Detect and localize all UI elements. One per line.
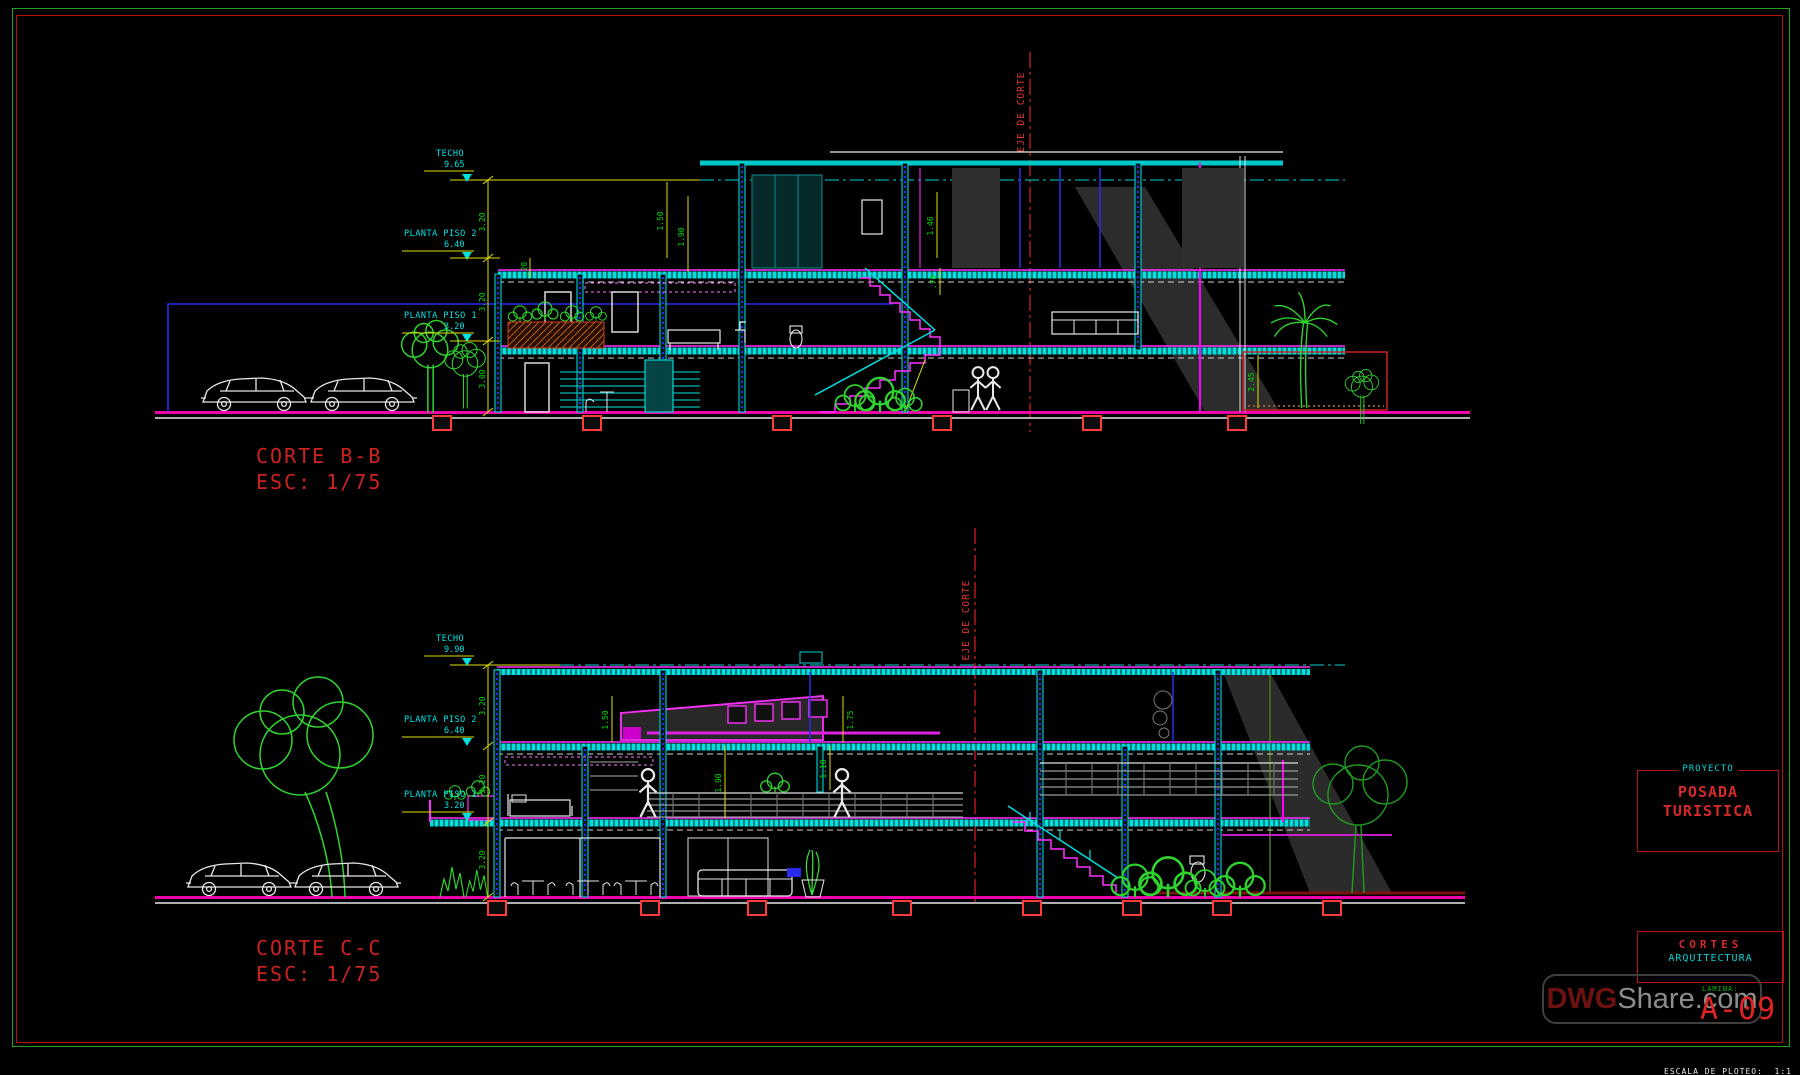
svg-text:1.46: 1.46 xyxy=(926,216,935,235)
svg-text:1.50: 1.50 xyxy=(601,710,610,729)
svg-text:1.75: 1.75 xyxy=(846,710,855,729)
svg-text:3.20: 3.20 xyxy=(444,322,464,332)
svg-text:PLANTA PISO 2: PLANTA PISO 2 xyxy=(404,715,477,725)
svg-text:3.20: 3.20 xyxy=(478,774,487,793)
svg-text:9.65: 9.65 xyxy=(444,160,464,170)
section-title-corte-cc: CORTE C-C xyxy=(256,936,382,960)
svg-text:PLANTA PISO 2: PLANTA PISO 2 xyxy=(404,229,477,239)
sheet-number: A-09 xyxy=(1700,992,1776,1027)
svg-text:9.90: 9.90 xyxy=(444,645,464,655)
svg-text:6.40: 6.40 xyxy=(444,240,464,250)
ground-line xyxy=(155,893,1465,903)
svg-text:1.90: 1.90 xyxy=(714,773,723,792)
bush-glyph xyxy=(466,870,488,897)
svg-text:.20: .20 xyxy=(520,262,529,277)
ground-line xyxy=(155,413,1470,419)
tree-glyph xyxy=(402,321,459,413)
project-label: PROYECTO xyxy=(1677,764,1738,774)
tree-glyph xyxy=(1345,369,1378,424)
section-scale-corte-cc: ESC: 1/75 xyxy=(256,962,382,986)
ground-floor-interior xyxy=(505,838,1205,897)
cut-axis-label: EJE DE CORTE xyxy=(1016,72,1027,153)
svg-text:TECHO: TECHO xyxy=(436,149,464,159)
balcony-railing xyxy=(647,763,1298,817)
svg-text:2.45: 2.45 xyxy=(1247,372,1256,391)
svg-text:3.00: 3.00 xyxy=(478,369,487,388)
project-title-box: PROYECTO POSADA TURISTICA xyxy=(1637,770,1779,852)
svg-text:3.20: 3.20 xyxy=(478,212,487,231)
svg-text:TECHO: TECHO xyxy=(436,634,464,644)
level-labels: TECHO 9.65 PLANTA PISO 2 6.40 PLANTA PIS… xyxy=(402,149,500,342)
car-glyph xyxy=(186,863,294,896)
svg-text:1.10: 1.10 xyxy=(819,759,828,778)
middle-floor-interior xyxy=(508,283,1138,350)
dimension-chain: 3.20 3.20 3.00 xyxy=(478,176,493,416)
sheet-title: CORTES xyxy=(1638,938,1783,951)
svg-text:3.20: 3.20 xyxy=(478,850,487,869)
cut-axis-line: EJE DE CORTE xyxy=(1016,52,1030,432)
level-labels: TECHO 9.90 PLANTA PISO 2 6.40 PLANTA PIS… xyxy=(402,634,477,821)
section-title-corte-bb: CORTE B-B xyxy=(256,444,382,468)
section-scale-corte-bb: ESC: 1/75 xyxy=(256,470,382,494)
svg-text:3.20: 3.20 xyxy=(478,696,487,715)
cut-axis-line: EJE DE CORTE xyxy=(961,528,975,905)
plot-scale-note: ESCALA DE PLOTEO: 1:1 xyxy=(1400,1066,1792,1075)
car-glyph xyxy=(293,863,401,896)
project-name-line2: TURISTICA xyxy=(1638,802,1778,821)
drawing-sheet: EJE DE CORTE xyxy=(0,0,1800,1075)
floor-slabs xyxy=(430,652,1310,830)
bush-glyph xyxy=(440,867,464,897)
clerestory-roof xyxy=(621,696,940,740)
cut-axis-label: EJE DE CORTE xyxy=(961,580,972,661)
car-glyph xyxy=(201,378,309,411)
svg-text:1.90: 1.90 xyxy=(677,227,686,246)
svg-text:3.20: 3.20 xyxy=(444,801,464,811)
svg-text:1.50: 1.50 xyxy=(656,211,665,230)
svg-text:.70: .70 xyxy=(929,275,938,290)
stair-glyph xyxy=(815,268,940,412)
section-drawing-corte-bb: EJE DE CORTE xyxy=(0,0,1800,520)
svg-text:6.40: 6.40 xyxy=(444,726,464,736)
svg-text:3.20: 3.20 xyxy=(478,292,487,311)
project-name-line1: POSADA xyxy=(1638,783,1778,802)
svg-text:PLANTA PISO 1: PLANTA PISO 1 xyxy=(404,311,477,321)
plot-info: ESCALA DE PLOTEO: 1:1 FORMATO: EXTENDIDO… xyxy=(1400,1044,1792,1075)
ground-floor-interior xyxy=(525,360,1001,412)
sheet-discipline: ARQUITECTURA xyxy=(1638,953,1783,964)
dimension-chain: 3.20 3.20 3.20 xyxy=(478,661,493,901)
watermark-prefix: DWG xyxy=(1546,983,1617,1016)
car-glyph xyxy=(309,378,417,411)
svg-text:PLANTA PISO 1: PLANTA PISO 1 xyxy=(404,790,477,800)
section-drawing-corte-cc: EJE DE CORTE xyxy=(0,520,1800,990)
